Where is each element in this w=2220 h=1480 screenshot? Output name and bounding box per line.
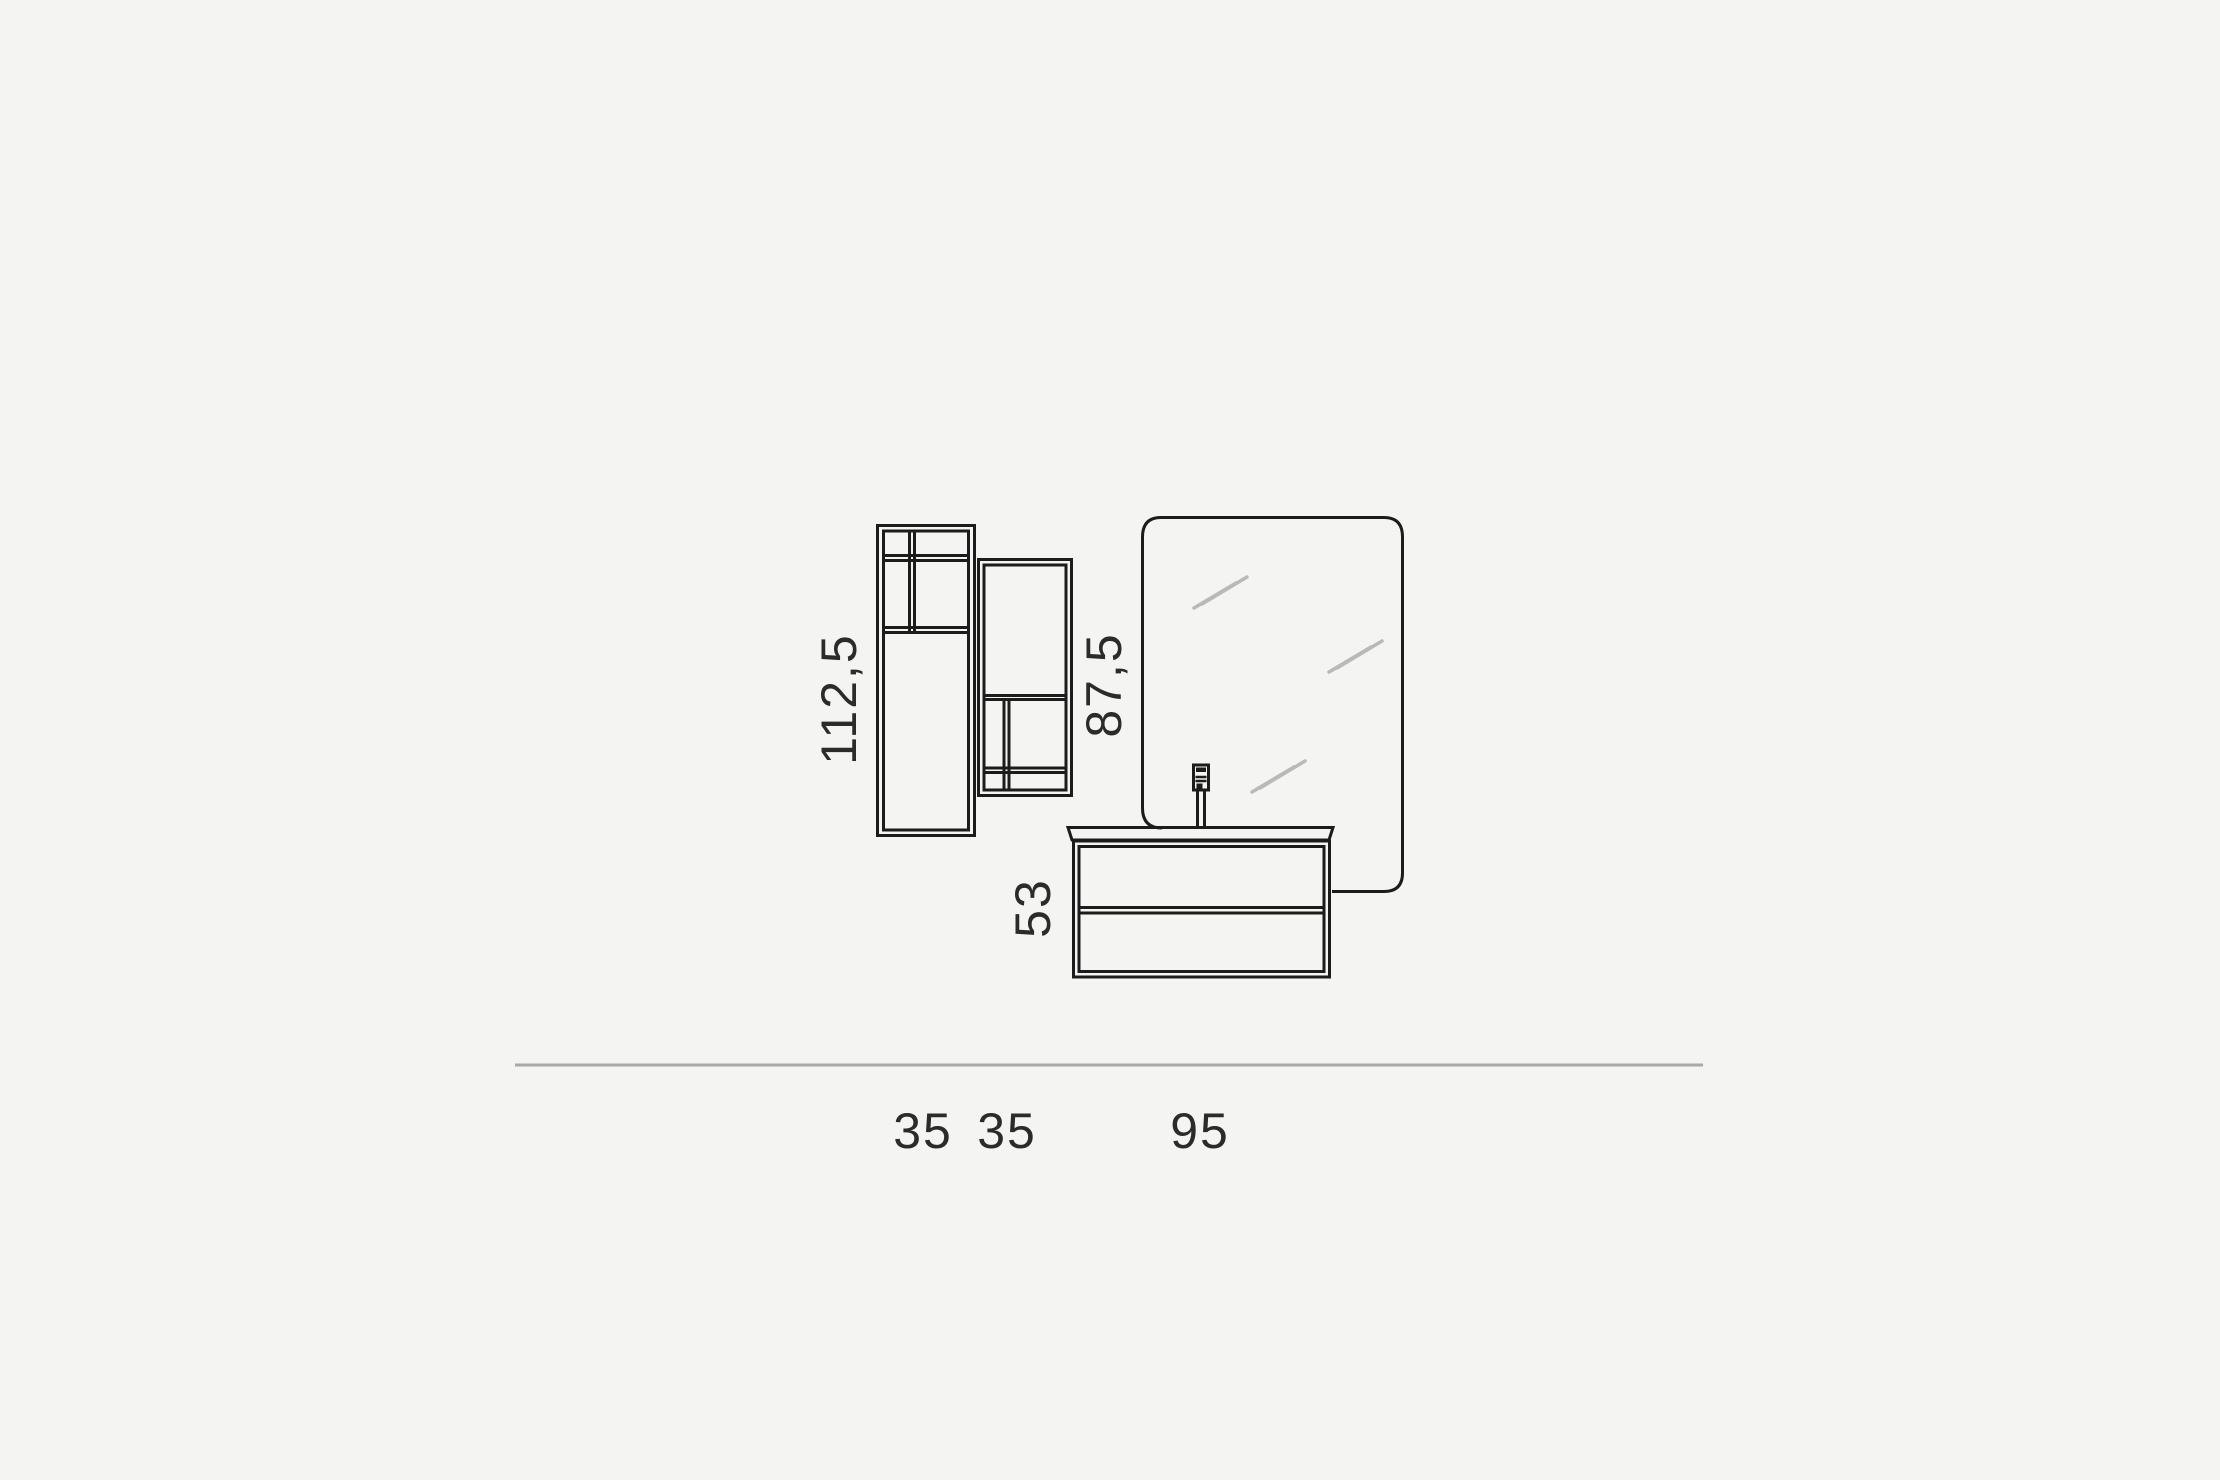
wall-cabinet-outer-frame (979, 560, 1072, 796)
dimension-wall-cabinet-width: 35 (977, 1102, 1037, 1160)
vanity-unit (1068, 828, 1333, 978)
dimension-vanity-height: 53 (1004, 878, 1062, 938)
mirror-gleam-icon (1329, 641, 1382, 672)
wall-cabinet-inner-frame (984, 565, 1066, 790)
dimension-tall-cabinet-height: 112,5 (810, 633, 868, 764)
dimension-wall-cabinet-height: 87,5 (1075, 632, 1133, 737)
dimension-tall-cabinet-width: 35 (893, 1102, 953, 1160)
mirror-gleam-icons (1194, 577, 1382, 792)
tall-cabinet-inner-frame (884, 531, 969, 830)
mirror-gleam-icon (1194, 577, 1247, 608)
tall-cabinet (878, 526, 975, 836)
mirror-outline (1143, 518, 1403, 892)
vanity-countertop (1068, 828, 1333, 841)
mirror (1143, 518, 1403, 892)
tall-cabinet-outer-frame (878, 526, 975, 836)
furniture-dimension-diagram: 112,5 87,5 53 35 35 95 (0, 0, 2220, 1480)
mirror-gleam-icon (1252, 761, 1305, 792)
dimension-vanity-width: 95 (1170, 1102, 1230, 1160)
line-drawing (0, 0, 2220, 1480)
wall-cabinet (979, 560, 1072, 796)
faucet-icon (1194, 765, 1209, 826)
